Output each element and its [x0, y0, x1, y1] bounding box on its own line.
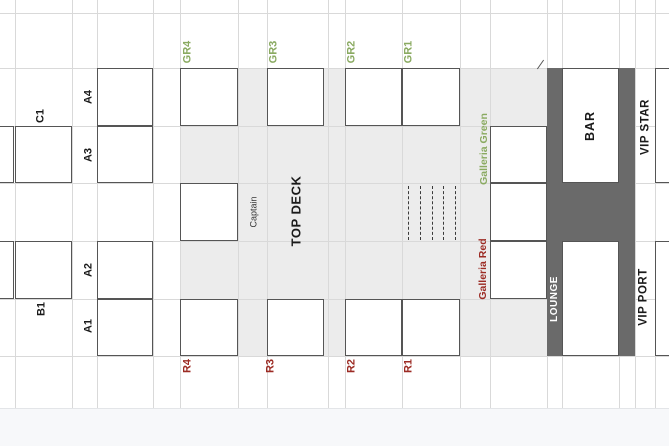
label-vip-port: VIP PORT — [638, 268, 650, 325]
box-port-top-clipped[interactable] — [0, 126, 14, 183]
grid-line-vertical — [655, 0, 656, 446]
box-star-top-clipped[interactable] — [655, 68, 669, 183]
center-dark-block[interactable] — [562, 183, 619, 241]
label-gr4: GR4 — [183, 41, 194, 64]
box-captain[interactable] — [180, 183, 238, 241]
box-r3[interactable] — [267, 299, 324, 356]
dashed-line — [455, 186, 456, 240]
box-c1[interactable] — [15, 126, 72, 183]
grid-line-horizontal — [0, 356, 669, 357]
label-gr2: GR2 — [347, 41, 358, 64]
box-r2[interactable] — [345, 299, 402, 356]
box-star-bottom-clipped[interactable] — [655, 241, 669, 356]
label-gr3: GR3 — [269, 41, 280, 64]
box-r4[interactable] — [180, 299, 238, 356]
grid-line-vertical — [72, 0, 73, 446]
grid-line-vertical — [402, 0, 403, 446]
label-b1: B1 — [37, 302, 48, 316]
label-r1: R1 — [404, 359, 415, 373]
box-galleria-green[interactable] — [490, 126, 547, 183]
grid-line-vertical — [635, 0, 636, 446]
box-r1[interactable] — [402, 299, 460, 356]
box-gr1[interactable] — [402, 68, 460, 126]
label-galleria-red: Galleria Red — [478, 238, 489, 299]
label-a2: A2 — [84, 263, 95, 277]
label-r2: R2 — [347, 359, 358, 373]
box-gr2[interactable] — [345, 68, 402, 126]
grid-line-vertical — [15, 0, 16, 446]
dashed-line — [443, 186, 444, 240]
box-a3[interactable] — [97, 126, 153, 183]
box-a4[interactable] — [97, 68, 153, 126]
dashed-line — [408, 186, 409, 240]
box-port-bottom-clipped[interactable] — [0, 241, 14, 299]
box-gr4[interactable] — [180, 68, 238, 126]
label-lounge: LOUNGE — [550, 276, 560, 322]
box-gr3[interactable] — [267, 68, 324, 126]
dashed-line — [432, 186, 433, 240]
lounge-wall-right[interactable] — [619, 68, 635, 356]
dashed-line — [420, 186, 421, 240]
label-a1: A1 — [84, 319, 95, 333]
grid-line-vertical — [345, 0, 346, 446]
box-lounge-room[interactable] — [562, 241, 619, 356]
label-a3: A3 — [84, 148, 95, 162]
label-galleria-green: Galleria Green — [479, 113, 490, 185]
label-captain: Captain — [250, 196, 259, 227]
box-b1[interactable] — [15, 241, 72, 299]
grid-line-horizontal — [0, 13, 669, 14]
label-c1: C1 — [36, 109, 47, 123]
box-galleria-red[interactable] — [490, 241, 547, 299]
box-a1[interactable] — [97, 299, 153, 356]
boat-deck-plan: GR4 GR3 GR2 GR1 R4 R3 R2 R1 C1 B1 A4 A3 … — [0, 0, 669, 446]
row-number-header: 7 8 9 10 11 12 13 14 15 16 17 18 19 20 2… — [0, 408, 669, 446]
grid-line-vertical — [97, 0, 98, 446]
label-r4: R4 — [183, 359, 194, 373]
label-a4: A4 — [84, 90, 95, 104]
label-r3: R3 — [266, 359, 277, 373]
label-vip-star: VIP STAR — [640, 99, 652, 155]
box-galleria-mid[interactable] — [490, 183, 547, 241]
label-bar: BAR — [584, 111, 597, 141]
grid-line-vertical — [328, 0, 329, 446]
grid-line-vertical — [153, 0, 154, 446]
grid-line-vertical — [267, 0, 268, 446]
grid-line-vertical — [460, 0, 461, 446]
label-top-deck: TOP DECK — [290, 176, 303, 247]
box-a2[interactable] — [97, 241, 153, 299]
grid-line-vertical — [238, 0, 239, 446]
label-gr1: GR1 — [404, 41, 415, 64]
